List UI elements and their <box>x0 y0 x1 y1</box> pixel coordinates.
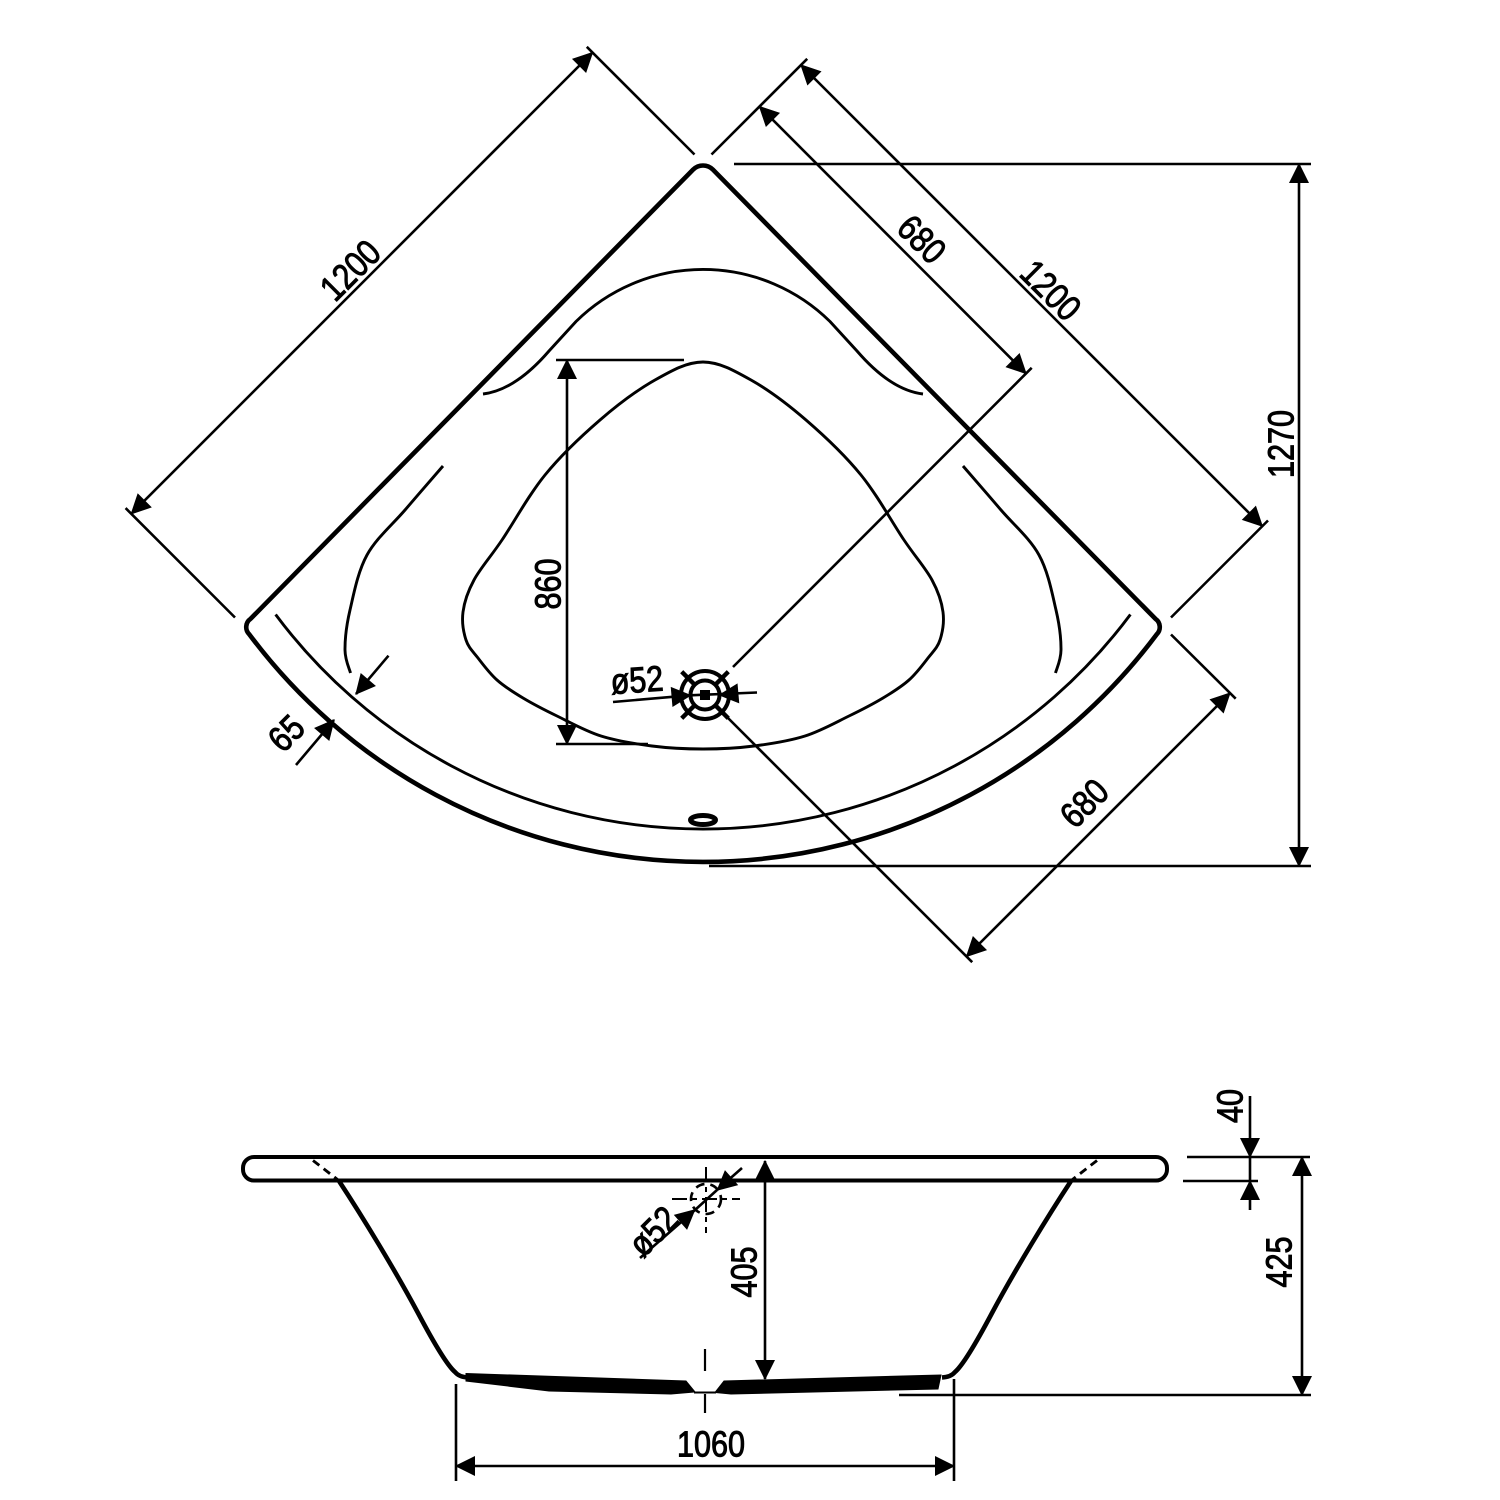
svg-text:ø52: ø52 <box>609 659 664 702</box>
svg-text:425: 425 <box>1260 1236 1300 1287</box>
svg-text:1270: 1270 <box>1262 410 1302 478</box>
svg-text:1060: 1060 <box>677 1425 745 1465</box>
svg-text:405: 405 <box>725 1246 765 1297</box>
svg-text:40: 40 <box>1211 1089 1251 1123</box>
svg-text:860: 860 <box>529 558 569 609</box>
